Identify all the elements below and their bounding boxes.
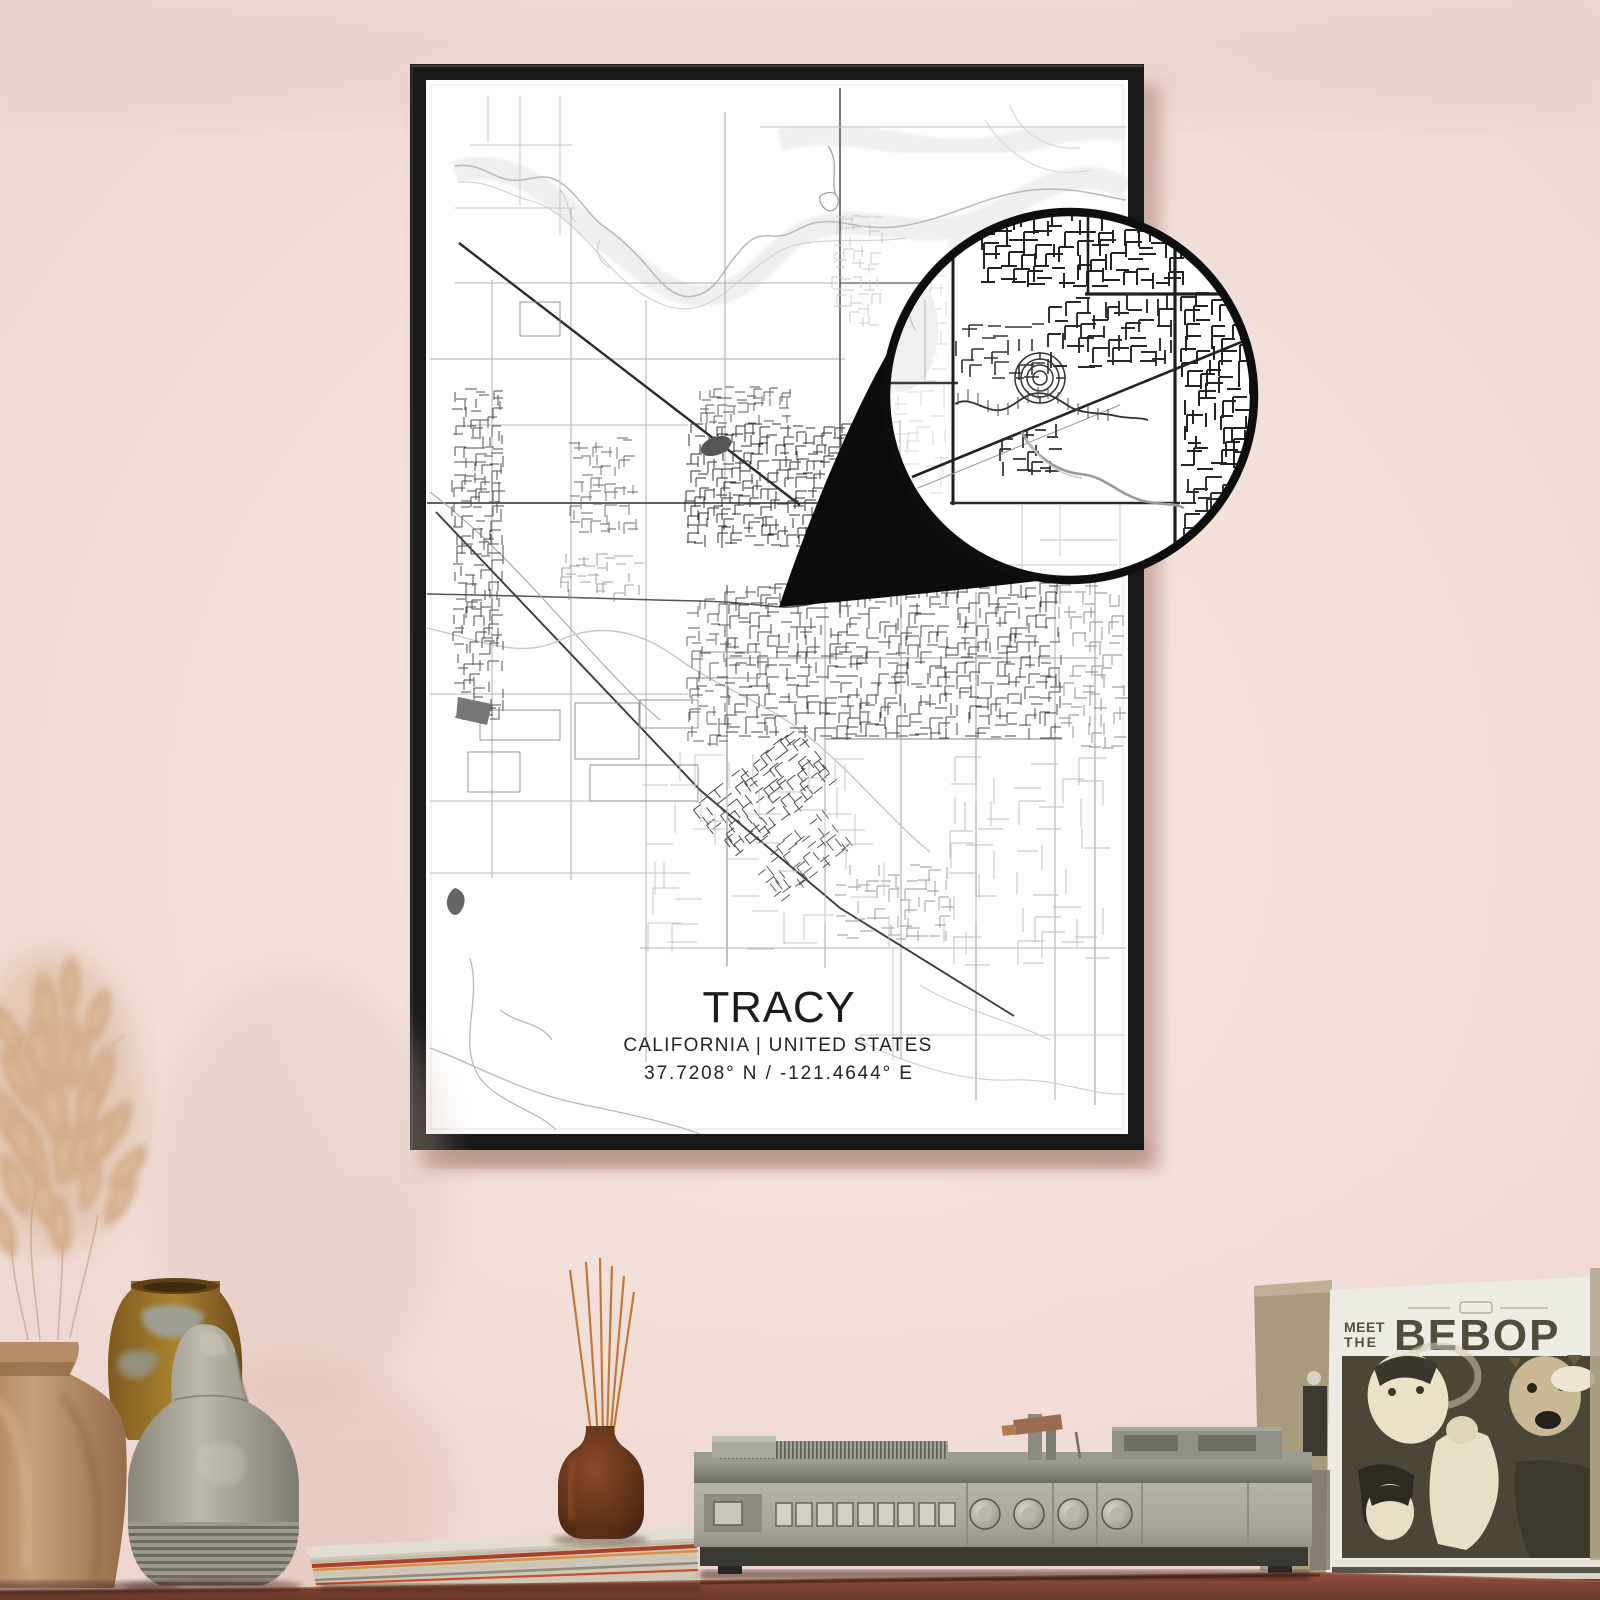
svg-text:MEET: MEET xyxy=(1344,1319,1385,1335)
svg-text:THE: THE xyxy=(1344,1334,1378,1350)
svg-text:CALIFORNIA | UNITED STATES: CALIFORNIA | UNITED STATES xyxy=(623,1035,932,1056)
svg-text:TRACY: TRACY xyxy=(702,983,855,1032)
svg-text:37.7208° N / -121.4644° E: 37.7208° N / -121.4644° E xyxy=(644,1063,914,1084)
